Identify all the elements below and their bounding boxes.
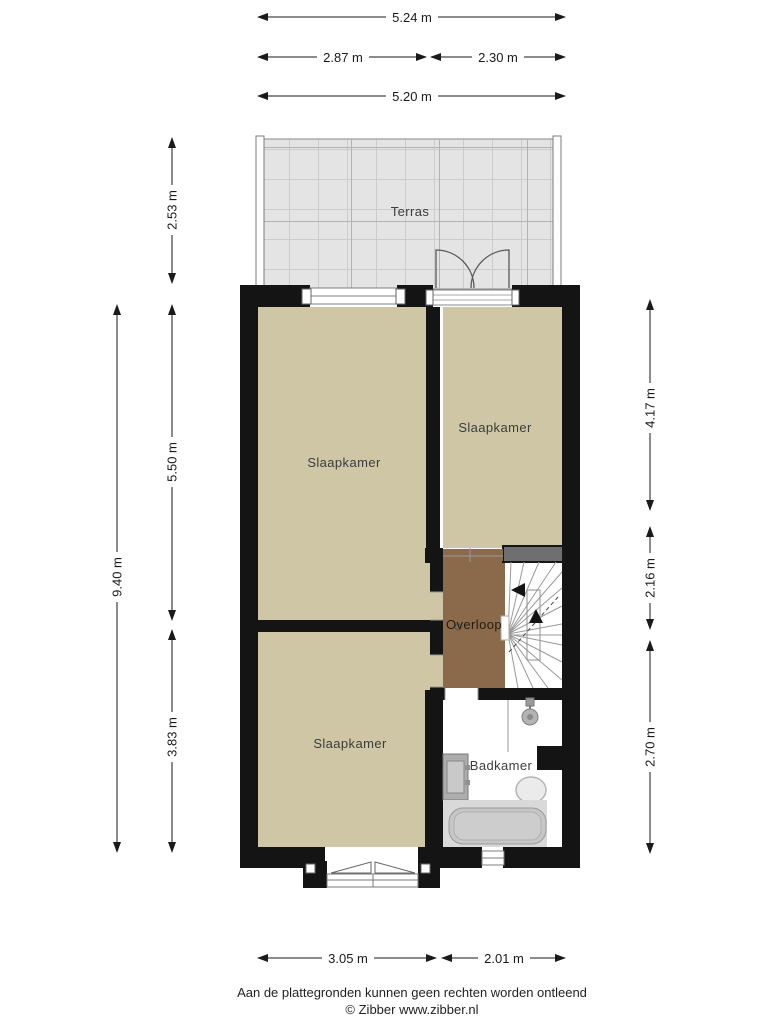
dimension-label-right-middle: 2.16 m: [643, 558, 658, 598]
dimension-label-top-left: 2.87 m: [323, 50, 363, 65]
dimension-label-left-upper: 5.50 m: [165, 442, 180, 482]
room-label-bedroom-bottom: Slaapkamer: [313, 736, 387, 751]
dimension-label-top-right: 2.30 m: [478, 50, 518, 65]
dimension-label-top-total: 5.24 m: [392, 10, 432, 25]
left-dimensions: 2.53 m 9.40 m 5.50 m 3.83 m: [109, 138, 180, 852]
toilet-icon: [516, 777, 546, 803]
top-wall-segment-3: [512, 285, 580, 307]
bottom-dimensions: 3.05 m 2.01 m: [258, 950, 565, 966]
room-label-bedroom-top-right: Slaapkamer: [458, 420, 532, 435]
bay-end-block: [421, 864, 430, 873]
stair-newel-block: [501, 616, 509, 640]
terrace: Terras: [256, 136, 561, 290]
bathtub-icon: [443, 800, 547, 847]
bottom-wall-segment-3: [503, 847, 580, 868]
bedroom-mid-wall: [258, 620, 442, 632]
door-opening-bedroom-bottom: [430, 655, 443, 687]
dimension-label-bottom-left: 3.05 m: [328, 951, 368, 966]
bathtub-inner: [454, 812, 541, 840]
room-label-bathroom: Badkamer: [470, 758, 533, 773]
door-opening-bedroom-top-left: [430, 592, 443, 620]
terrace-wall-right: [553, 136, 561, 290]
dimension-label-right-lower: 2.70 m: [643, 727, 658, 767]
bathroom-wall-pier: [537, 746, 562, 770]
door-opening-bedroom-top-right: [443, 549, 503, 561]
top-wall-segment-1: [240, 285, 310, 307]
window-end-block: [302, 289, 311, 304]
room-label-terrace: Terras: [391, 204, 430, 219]
door-opening-bathroom: [445, 688, 478, 700]
footer: Aan de plattegronden kunnen geen rechten…: [237, 985, 587, 1017]
window-end-block: [396, 289, 405, 304]
room-label-landing: Overloop: [446, 617, 502, 632]
dimension-label-terrace-height: 2.53 m: [165, 190, 180, 230]
door-end-block: [426, 290, 433, 305]
stairs-head-wall: [503, 546, 563, 562]
terrace-wall-left: [256, 136, 264, 290]
room-label-bedroom-top-left: Slaapkamer: [307, 455, 381, 470]
bathroom-west-wall: [425, 690, 443, 848]
footer-disclaimer: Aan de plattegronden kunnen geen rechten…: [237, 985, 587, 1000]
floorplan: 5.24 m 2.87 m 2.30 m 5.20 m 2.53 m 9.40 …: [0, 0, 768, 1024]
door-end-block: [512, 290, 519, 305]
dimension-label-top-inner: 5.20 m: [392, 89, 432, 104]
footer-copyright: © Zibber www.zibber.nl: [345, 1002, 478, 1017]
sink-icon: [443, 754, 470, 800]
right-dimensions: 4.17 m 2.16 m 2.70 m: [642, 300, 658, 853]
bedroom-divider-wall: [426, 307, 440, 553]
dimension-label-bottom-right: 2.01 m: [484, 951, 524, 966]
dimension-label-left-total: 9.40 m: [110, 557, 125, 597]
dimension-label-right-upper: 4.17 m: [643, 388, 658, 428]
shower-valve: [526, 698, 534, 706]
bay-end-block: [306, 864, 315, 873]
sink-basin: [447, 761, 464, 793]
floorplan-page: 5.24 m 2.87 m 2.30 m 5.20 m 2.53 m 9.40 …: [0, 0, 768, 1024]
shower-head-center: [527, 714, 533, 720]
sink-tap: [465, 780, 470, 785]
outer-wall-right: [562, 285, 580, 868]
door-threshold: [433, 290, 512, 305]
outer-wall-left: [240, 285, 258, 868]
top-dimensions: 5.24 m 2.87 m 2.30 m 5.20 m: [258, 9, 565, 104]
dimension-label-left-lower: 3.83 m: [165, 717, 180, 757]
